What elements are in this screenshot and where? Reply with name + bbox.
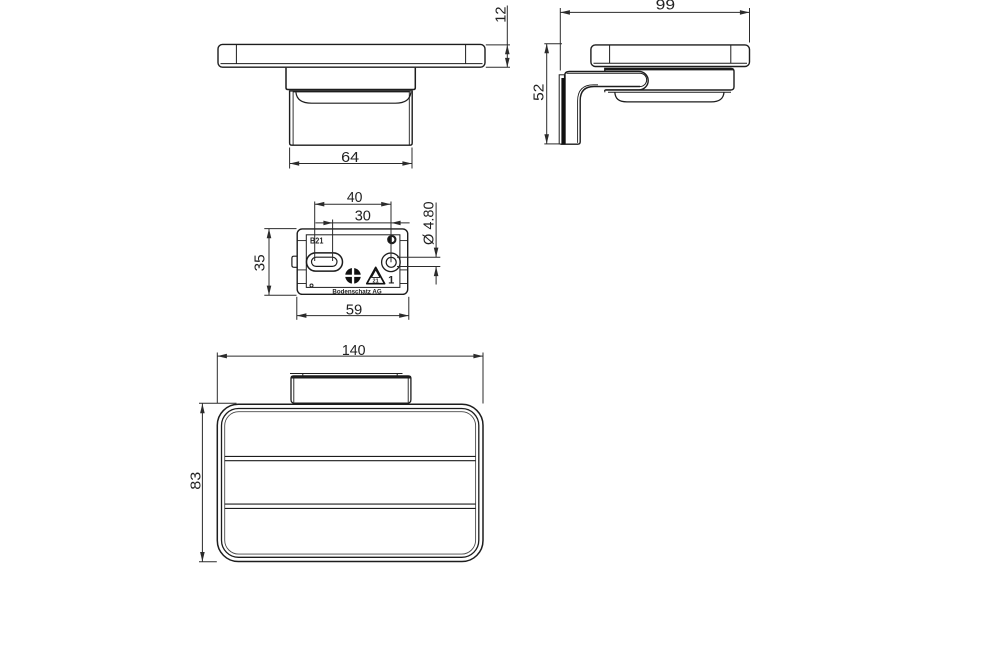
- svg-text:1: 1: [388, 274, 394, 286]
- svg-text:12: 12: [492, 7, 509, 23]
- svg-text:21: 21: [373, 278, 379, 284]
- svg-text:40: 40: [347, 189, 363, 206]
- svg-text:Bodenschatz AG: Bodenschatz AG: [332, 288, 381, 295]
- svg-text:Ø 4.80: Ø 4.80: [421, 201, 438, 245]
- svg-text:30: 30: [355, 207, 371, 224]
- svg-text:59: 59: [346, 302, 363, 319]
- svg-text:52: 52: [531, 84, 548, 101]
- svg-text:140: 140: [342, 342, 366, 359]
- svg-text:B21: B21: [310, 237, 324, 246]
- svg-text:35: 35: [251, 254, 268, 271]
- svg-text:83: 83: [188, 472, 205, 490]
- svg-text:64: 64: [341, 149, 359, 166]
- svg-text:99: 99: [656, 0, 676, 14]
